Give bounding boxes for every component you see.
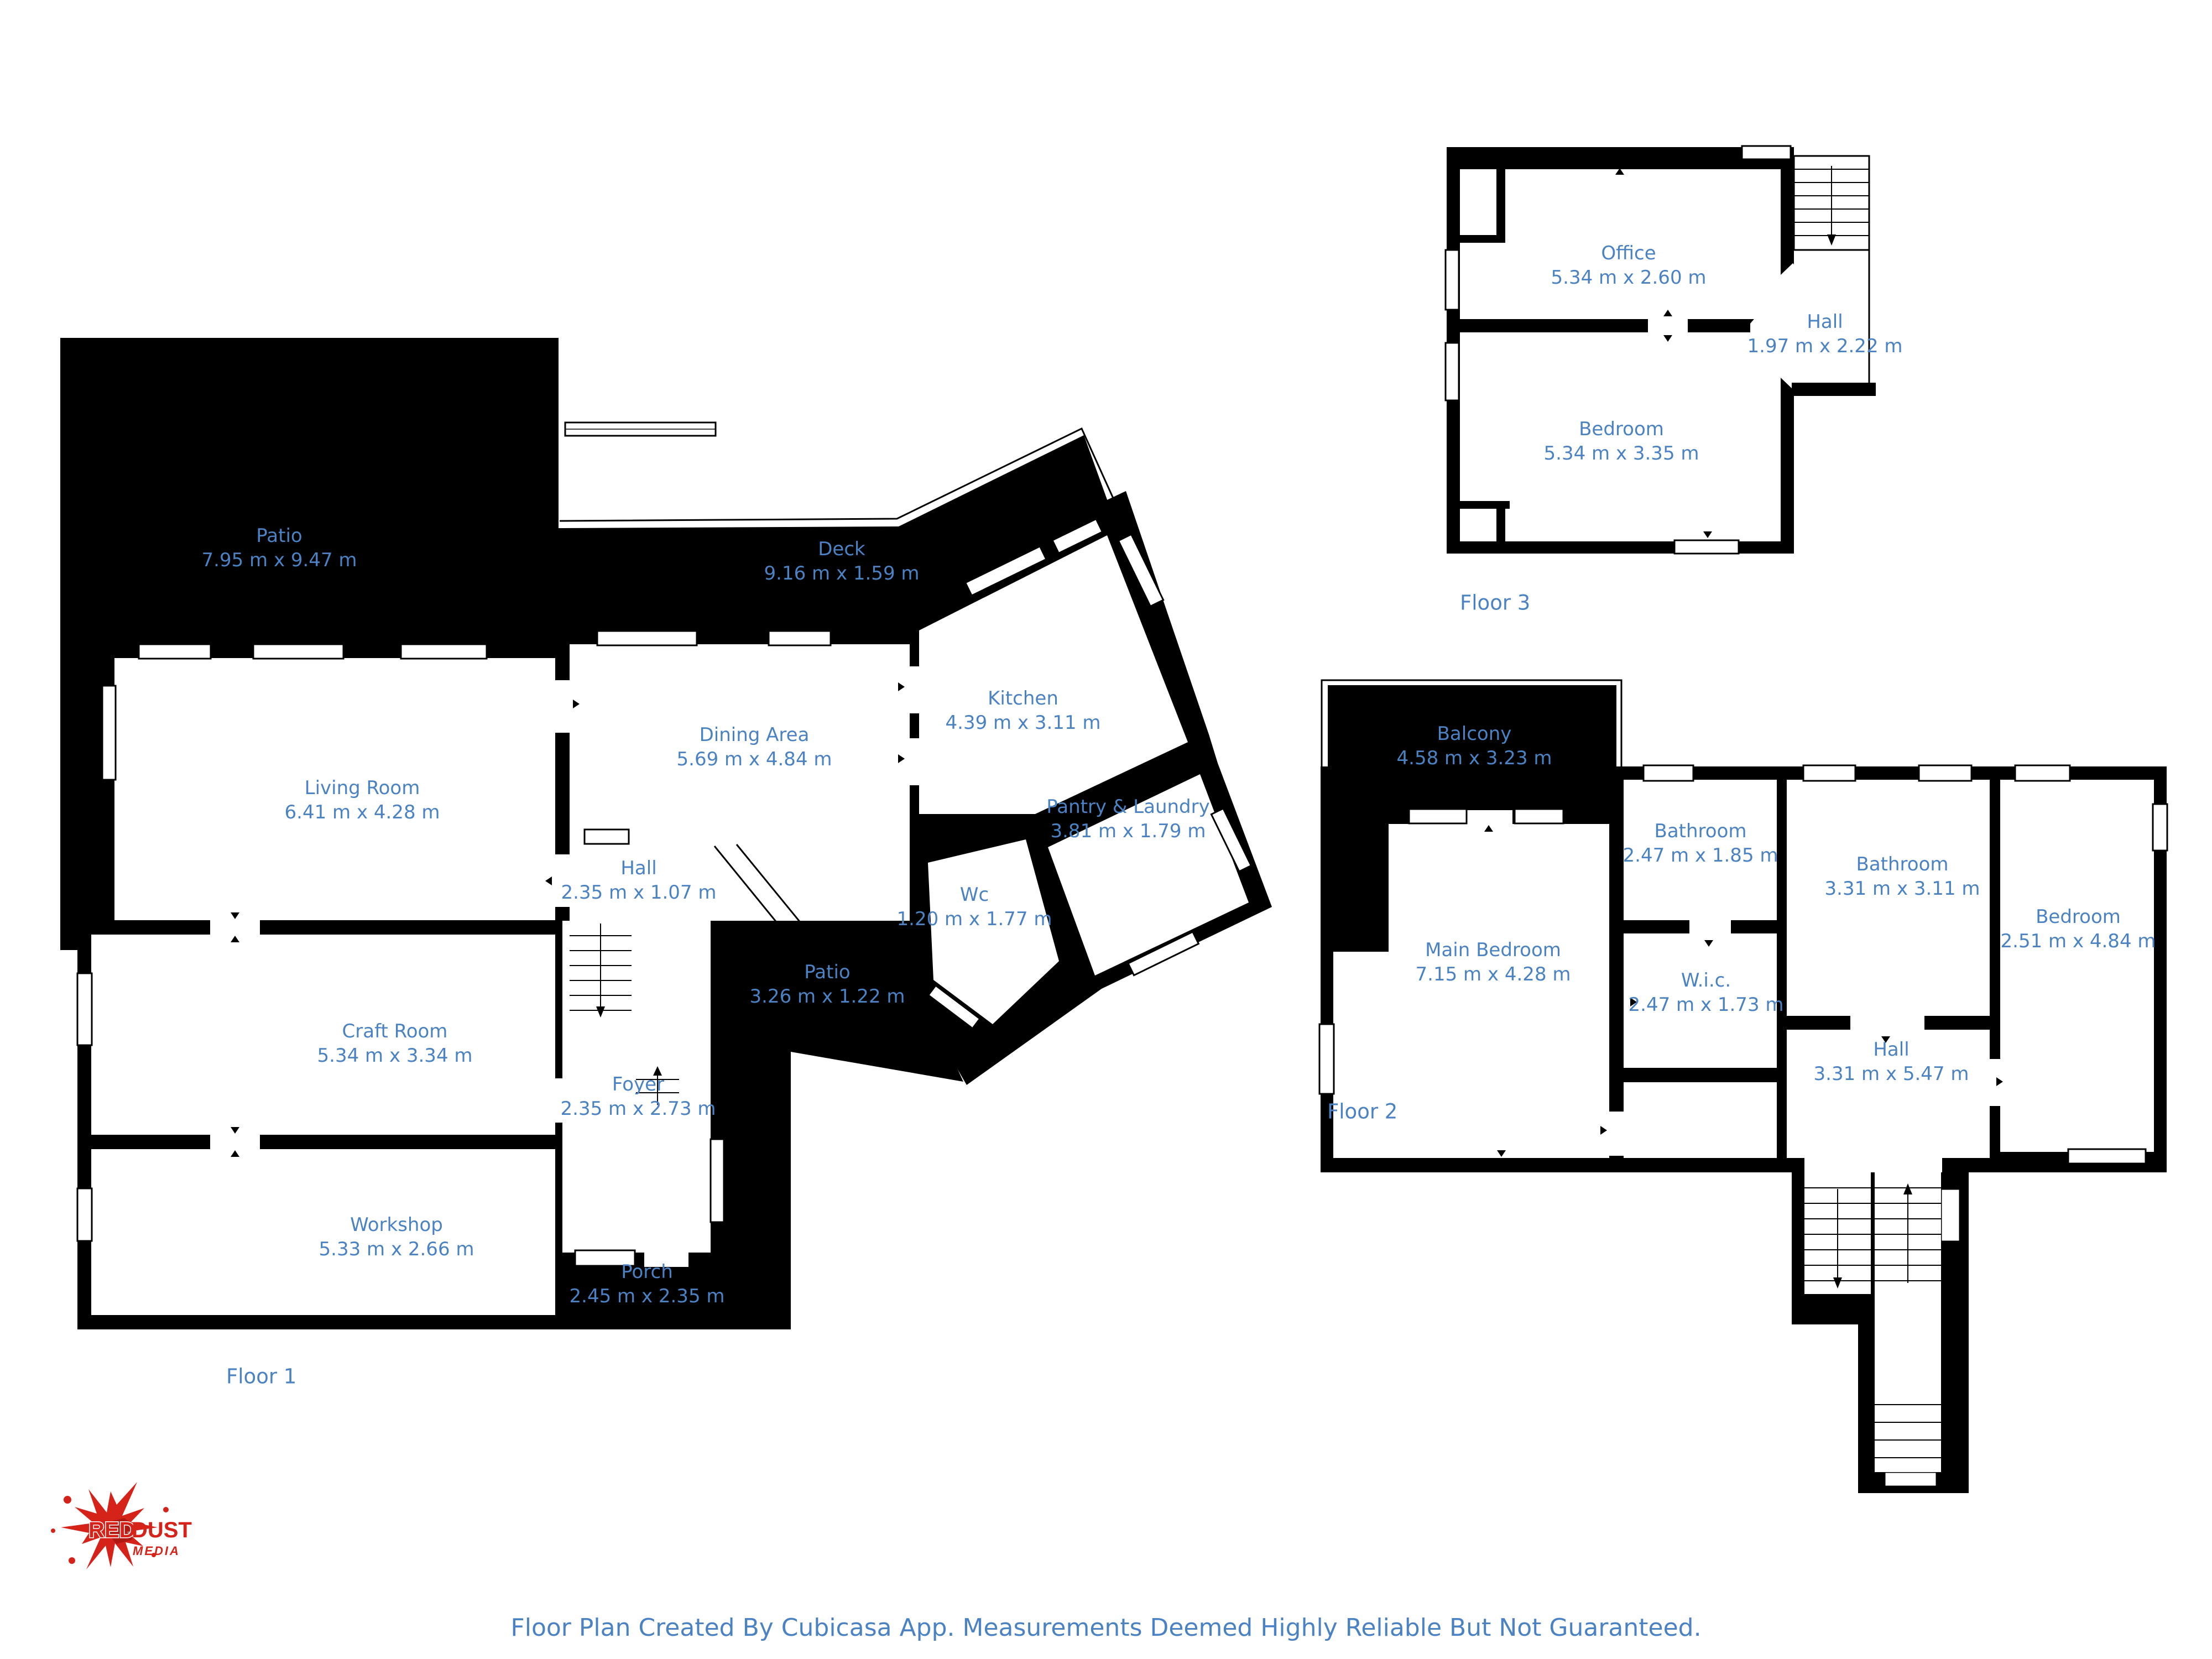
room-label-f1-living-room: Living Room6.41 m x 4.28 m	[285, 776, 440, 825]
disclaimer-caption: Floor Plan Created By Cubicasa App. Meas…	[0, 1614, 2212, 1642]
bath2-hall-wall-right	[1924, 1016, 1990, 1030]
room-label-f2-wic: W.i.c.2.47 m x 1.73 m	[1629, 968, 1784, 1017]
floor1-main-staircase	[570, 921, 632, 1024]
room-label-f1-patio: Patio7.95 m x 9.47 m	[202, 524, 357, 572]
door-gap-balcony	[1465, 810, 1512, 824]
door-gap-living-dining-1	[555, 680, 571, 733]
floor2-corridor-floor	[1624, 1082, 1777, 1158]
room-label-f1-wc: Wc1.20 m x 1.77 m	[897, 883, 1052, 931]
door-gap-dining-kitchen-2	[909, 738, 923, 785]
room-label-f1-dining-area: Dining Area5.69 m x 4.84 m	[677, 723, 832, 771]
room-label-f2-hall: Hall3.31 m x 5.47 m	[1814, 1037, 1969, 1086]
logo-word-media: MEDIA	[133, 1544, 180, 1558]
opening-hall-stairs	[1804, 1158, 1942, 1172]
floor1-patio-area	[60, 338, 559, 651]
door-gap-dining-kitchen-1	[909, 666, 923, 713]
room-label-f1-small-patio: Patio3.26 m x 1.22 m	[750, 960, 905, 1009]
door-gap-office-bedroom	[1648, 319, 1688, 332]
room-label-f2-balcony: Balcony4.58 m x 3.23 m	[1397, 722, 1552, 770]
floor2-plan	[1319, 680, 2167, 1493]
room-label-f3-office: Office5.34 m x 2.60 m	[1551, 241, 1707, 290]
door-gap-bathroom1	[1689, 920, 1731, 933]
room-label-f2-bathroom2: Bathroom3.31 m x 3.11 m	[1825, 852, 1980, 901]
hall3-bottom-wall	[1792, 383, 1876, 396]
room-label-f2-bedroom: Bedroom2.51 m x 4.84 m	[2001, 905, 2156, 953]
bathroom2-hall-floor	[1787, 780, 1990, 1158]
floor1-caption: Floor 1	[226, 1365, 296, 1389]
room-label-f3-hall: Hall1.97 m x 2.22 m	[1747, 310, 1903, 358]
bath2-hall-wall-left	[1787, 1016, 1850, 1030]
logo-word-dust: DUST	[132, 1518, 192, 1542]
floor3-caption: Floor 3	[1460, 591, 1530, 615]
foyer-floor	[562, 1026, 711, 1253]
room-label-f1-pantry-laundry: Pantry & Laundry3.81 m x 1.79 m	[1046, 795, 1209, 843]
room-label-f1-foyer: Foyer2.35 m x 2.73 m	[561, 1072, 716, 1121]
bedroom3-closet-wall-v	[1496, 509, 1505, 541]
door-gap-craft-workshop	[210, 1135, 260, 1149]
floor-plan-page: { "colors": { "label_blue": "#4a82c3", "…	[0, 0, 2212, 1659]
logo-word-red: RED	[88, 1518, 135, 1542]
office-closet-wall-v	[1496, 169, 1505, 235]
room-label-f3-bedroom: Bedroom5.34 m x 3.35 m	[1544, 417, 1699, 466]
floor3-staircase	[1794, 156, 1869, 250]
floor1-porch-column	[724, 1044, 791, 1266]
floor2-caption: Floor 2	[1327, 1100, 1397, 1124]
door-gap-living-craft	[210, 920, 260, 935]
room-label-f1-kitchen: Kitchen4.39 m x 3.11 m	[946, 686, 1101, 735]
room-label-f1-workshop: Workshop5.33 m x 2.66 m	[319, 1213, 474, 1261]
bedroom2-floor	[2000, 780, 2154, 1152]
room-label-f1-craft-room: Craft Room5.34 m x 3.34 m	[317, 1019, 473, 1068]
room-label-f1-porch: Porch2.45 m x 2.35 m	[570, 1260, 725, 1308]
door-gap-mainbed-corridor	[1609, 1112, 1624, 1156]
room-label-f2-bathroom1: Bathroom2.47 m x 1.85 m	[1623, 819, 1778, 868]
room-label-f1-hall: Hall2.35 m x 1.07 m	[561, 856, 717, 905]
red-dust-media-logo: RED DUST MEDIA	[51, 1482, 192, 1569]
office-closet-wall-h	[1460, 235, 1505, 243]
room-label-f1-deck: Deck9.16 m x 1.59 m	[764, 537, 920, 586]
bedroom3-closet-wall-h	[1460, 501, 1510, 509]
room-label-f2-main-bedroom: Main Bedroom7.15 m x 4.28 m	[1416, 938, 1571, 987]
